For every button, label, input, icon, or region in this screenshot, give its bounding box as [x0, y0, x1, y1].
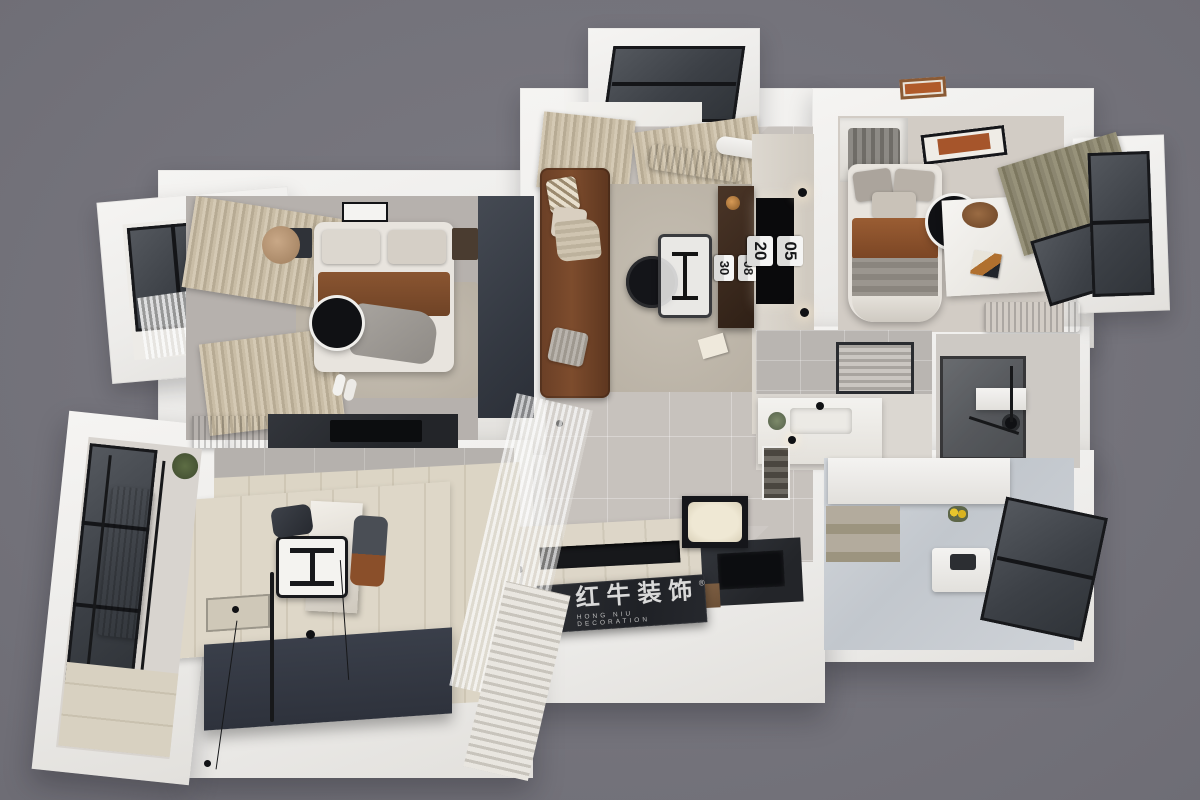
study-downlight-1	[232, 606, 239, 613]
floor-lamp-pole	[270, 572, 274, 722]
tv-wall-spotlight-bottom	[800, 308, 809, 317]
watermark-registered-mark: ®	[698, 578, 705, 587]
left-bed-pillow-2	[388, 230, 446, 264]
tv-flip-clock: 05 20	[738, 234, 812, 268]
washing-machine-lid	[950, 554, 976, 570]
master-bench	[852, 296, 940, 322]
sofa-pillow-gray	[547, 327, 589, 368]
console-gold-ornament	[726, 196, 740, 210]
pillow-art-canvas	[688, 502, 742, 542]
master-ac-unit	[984, 302, 1080, 332]
study-chair-brown	[350, 515, 389, 587]
tatami-platform-front	[204, 627, 452, 730]
master-desk-book	[970, 250, 1002, 278]
bath-plant	[768, 412, 786, 430]
shower-niche-shelf	[976, 388, 1026, 410]
master-blanket-brown	[852, 218, 938, 260]
tv-wall-spotlight-top	[798, 188, 807, 197]
shower-pipe-vertical	[1010, 366, 1013, 422]
tv-clock-minutes: 20	[747, 236, 773, 266]
master-pillow-3	[872, 192, 916, 218]
bath-spotlight	[788, 436, 796, 444]
laundry-upper-cabinet	[828, 458, 1010, 504]
sofa-throw-blanket	[554, 218, 602, 262]
balcony-bl-floor-planks	[58, 662, 178, 757]
left-bedroom-wardrobe	[478, 196, 534, 418]
master-bedding-gray	[852, 258, 938, 298]
master-art-frame-small	[899, 76, 946, 99]
left-bedroom-wood-lamp-disc	[262, 226, 300, 264]
laundry-steps	[826, 506, 900, 562]
bath-faucet	[816, 402, 824, 410]
bath-pleated-shade	[836, 342, 914, 394]
left-bedroom-pendant-lamp	[312, 298, 362, 348]
left-bedroom-wall-art	[342, 202, 388, 222]
bath-sink-basin	[790, 408, 852, 434]
kitchen-cooktop	[330, 420, 422, 442]
console-clock-minutes: 30	[714, 255, 734, 281]
left-bed-nightstand-right	[452, 228, 478, 260]
sink-basin-dark	[717, 550, 785, 589]
study-downlight-2	[306, 630, 315, 639]
left-bed-pillow-1	[322, 230, 380, 264]
study-chair-dark	[270, 503, 314, 538]
bath-towel-art	[762, 446, 790, 500]
laundry-flowers	[948, 506, 968, 522]
study-desk-h-pattern	[290, 548, 334, 586]
entry-balcony-mullion	[612, 82, 737, 86]
master-desk-stool	[962, 202, 998, 228]
floorplan-render: 08 30 05 20	[0, 0, 1200, 800]
tatami-hatch	[206, 594, 270, 632]
tv-clock-hours: 05	[777, 236, 803, 266]
study-downlight-3	[204, 760, 211, 767]
